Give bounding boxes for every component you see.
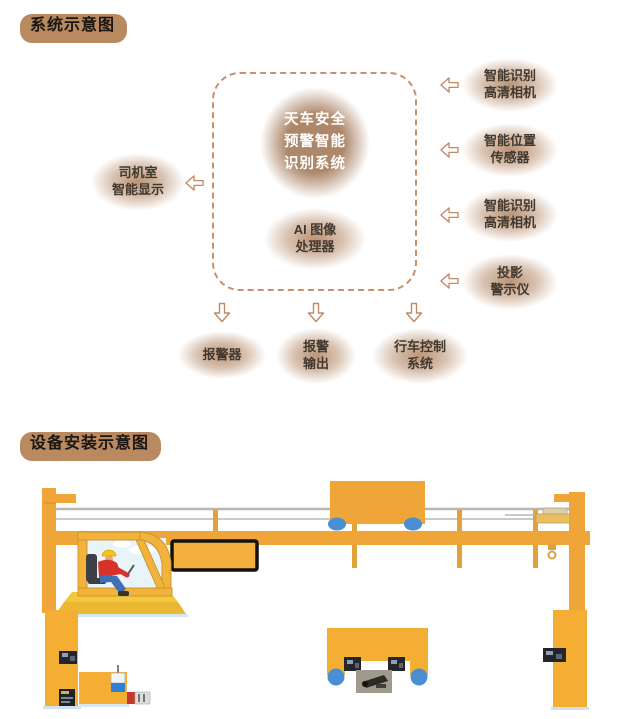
camera-device [344,657,361,671]
trolley-wheel [404,518,422,531]
cab-display-screen [172,541,257,570]
camera-box-1: 智能识别 高清相机 [462,58,558,112]
projector-device [356,670,392,693]
alarm-box: 报警器 [178,331,266,379]
page: { "colors": { "accent_tan": "#b9895f", "… [0,0,618,719]
system-core-circle: 天车安全 预警智能 识别系统 [260,87,370,199]
camera-device [59,651,77,664]
ai-processor-box: AI 图像 处理器 [264,208,366,270]
trolley-wheel [328,669,345,686]
alarm-output-box: 报警 输出 [276,328,356,384]
trolley-wheel [328,518,346,531]
trolley-wheel [411,669,428,686]
section1-title-chip: 系统示意图 [20,14,127,43]
arrow-left-icon [440,272,459,290]
crane-rails [50,509,578,519]
crane-control-box: 行车控制 系统 [372,328,468,384]
camera-device [388,657,405,671]
arrow-left-icon [440,76,459,94]
arrow-left-icon [185,174,204,192]
camera-box-2: 智能识别 高清相机 [462,188,558,242]
panel-device [59,689,75,706]
right-ground-column [543,610,589,710]
section1-title: 系统示意图 [30,17,115,34]
position-sensor-device [111,665,125,692]
projection-warning-box: 投影 警示仪 [462,254,558,310]
position-sensor-box: 智能位置 传感器 [462,123,558,177]
arrow-down-icon [213,302,231,323]
camera-device [543,648,566,662]
crane-trolley [328,481,425,531]
crane-installation-illustration [0,470,618,719]
trolley-front-view [327,628,428,693]
ground-control-box [79,665,150,707]
driver-display-box: 司机室 智能显示 [91,153,185,211]
section2-title-chip: 设备安装示意图 [20,432,161,461]
arrow-down-icon [307,302,325,323]
alarm-device [127,692,150,704]
left-ground-column [43,610,81,709]
section2-title: 设备安装示意图 [30,435,149,452]
arrow-down-icon [405,302,423,323]
crane-hook [548,545,556,559]
arrow-left-icon [440,206,459,224]
arrow-left-icon [440,141,459,159]
